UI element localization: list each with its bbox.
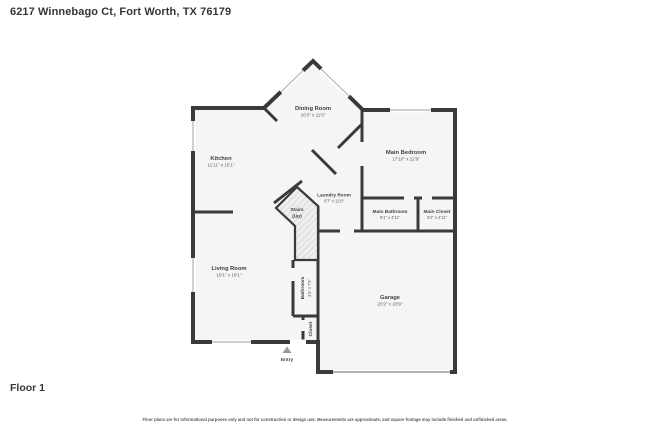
room-dims-label: 16'1" x 19'1" bbox=[216, 273, 242, 278]
room-name-label: Closet bbox=[308, 321, 314, 336]
room-living: Living Room 16'1" x 19'1" bbox=[211, 266, 246, 278]
room-dims-label: 8'1" x 4'11" bbox=[380, 215, 400, 220]
room-dims-label: 11'11" x 15'1" bbox=[207, 163, 234, 168]
room-closet: Closet bbox=[308, 321, 314, 336]
floorplan-canvas: Dining Room 10'3" x 11'5" Kitchen 11'11"… bbox=[0, 0, 650, 434]
floor-label: Floor 1 bbox=[10, 382, 45, 394]
room-name-label: Garage bbox=[380, 295, 401, 301]
room-dims-label: 3'5" x 7'5" bbox=[307, 279, 312, 297]
room-dims-label: 20'2" x 20'9" bbox=[377, 302, 403, 307]
room-name-label: Bathroom bbox=[300, 277, 306, 300]
room-dims-label: 9'7" x 11'8" bbox=[324, 199, 344, 204]
room-name-label: Dining Room bbox=[295, 106, 331, 112]
room-name-label: Kitchen bbox=[210, 156, 232, 162]
room-name-label: Stairs bbox=[290, 207, 304, 213]
disclaimer-text: Floor plans are for informational purpos… bbox=[0, 417, 650, 422]
entry-direction-icon bbox=[283, 347, 292, 354]
entry-marker: Entry bbox=[281, 347, 294, 364]
room-sub-label: (Up) bbox=[292, 214, 302, 220]
room-dims-label: 5'2" x 4'11" bbox=[427, 215, 447, 220]
room-dims-label: 10'3" x 11'5" bbox=[301, 113, 326, 118]
room-kitchen: Kitchen 11'11" x 15'1" bbox=[207, 156, 234, 168]
entry-label: Entry bbox=[281, 357, 294, 363]
room-dims-label: 17'10" x 12'9" bbox=[392, 157, 420, 162]
room-garage: Garage 20'2" x 20'9" bbox=[377, 295, 403, 307]
room-name-label: Main Bedroom bbox=[386, 150, 426, 156]
room-main-closet: Main Closet 5'2" x 4'11" bbox=[424, 209, 451, 220]
room-name-label: Living Room bbox=[211, 266, 246, 272]
